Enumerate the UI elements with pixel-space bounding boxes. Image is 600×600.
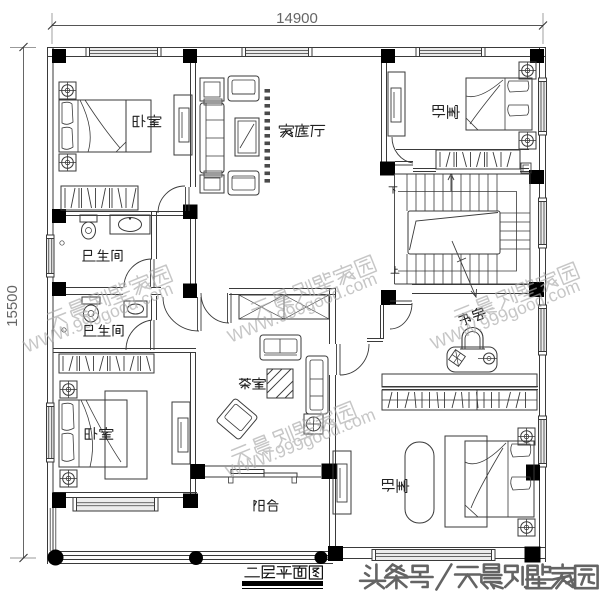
svg-text:15500: 15500 bbox=[4, 285, 21, 327]
svg-text:14900: 14900 bbox=[276, 10, 318, 27]
